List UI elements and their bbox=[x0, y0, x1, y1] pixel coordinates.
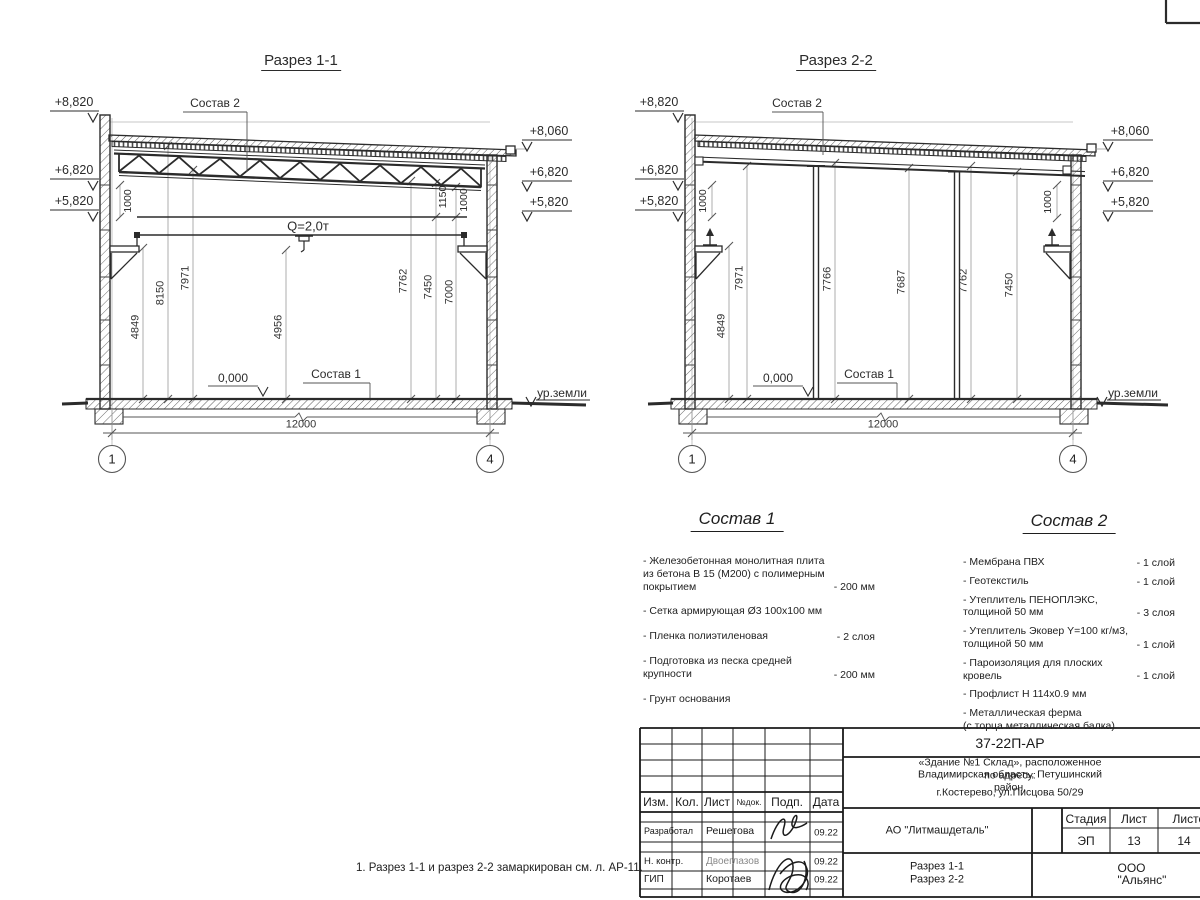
section1-elevation-right-2: +5,820 bbox=[530, 196, 569, 209]
drawing-sheet: Разрез 1-1 +8,820 +6,820 +5,820 +8,060 +… bbox=[0, 0, 1200, 900]
section1-comp2-ref: Состав 2 bbox=[190, 97, 240, 109]
section2-elevation-left-1: +6,820 bbox=[640, 164, 679, 177]
list-item: - Утеплитель Эковер Y=100 кг/м3, толщино… bbox=[963, 625, 1175, 651]
section1-grid-bubble-1: 1 bbox=[108, 453, 115, 466]
list-item: - Подготовка из песка средней крупности-… bbox=[643, 655, 875, 681]
composition2-list: - Мембрана ПВХ- 1 слой - Геотекстиль- 1 … bbox=[963, 556, 1175, 739]
titleblock-col-data: Дата bbox=[813, 796, 840, 808]
titleblock-role-1: Н. контр. bbox=[644, 857, 683, 867]
section2-vdim-1: 7971 bbox=[735, 266, 746, 290]
section1-grid-bubble-4: 4 bbox=[486, 453, 493, 466]
titleblock-contractor: ООО "Альянс" bbox=[1118, 862, 1173, 886]
section1-level-zero: 0,000 bbox=[218, 372, 248, 384]
section2-grid-bubble-4: 4 bbox=[1069, 453, 1076, 466]
section1-elevation-right-1: +6,820 bbox=[530, 166, 569, 179]
section1-elevation-left-2: +5,820 bbox=[55, 195, 94, 208]
section2-vdim-2: 7766 bbox=[823, 267, 834, 291]
composition2-title: Состав 2 bbox=[1023, 511, 1116, 534]
section2-smalldim-1: 1000 bbox=[1043, 190, 1054, 213]
list-item: - Грунт основания bbox=[643, 693, 875, 706]
section1-title: Разрез 1-1 bbox=[261, 53, 341, 71]
titleblock-col-kol: Кол. bbox=[675, 796, 699, 808]
section1-smalldim-2: 1000 bbox=[459, 188, 470, 211]
section1-vdim-2: 7971 bbox=[181, 266, 192, 290]
titleblock-col-ndok: №док. bbox=[737, 798, 762, 807]
titleblock-date-1: 09.22 bbox=[814, 857, 838, 867]
section2-ground-label: ур.земли bbox=[1108, 387, 1158, 399]
titleblock-sheets-label: Листов bbox=[1173, 813, 1200, 825]
section1-vdim-3: 4956 bbox=[274, 315, 285, 339]
section1-elevation-left-0: +8,820 bbox=[55, 96, 94, 109]
section1-ground-label: ур.земли bbox=[537, 387, 587, 399]
section2-grid-bubble-1: 1 bbox=[688, 453, 695, 466]
titleblock-date-2: 09.22 bbox=[814, 875, 838, 885]
titleblock-col-podp: Подп. bbox=[771, 796, 803, 808]
list-item: - Сетка армирующая Ø3 100х100 мм bbox=[643, 605, 875, 618]
section2-elevation-right-0: +8,060 bbox=[1111, 125, 1150, 138]
titleblock-role-0: Разработал bbox=[644, 827, 693, 836]
section1-elevation-left-1: +6,820 bbox=[55, 164, 94, 177]
titleblock-role-2: ГИП bbox=[644, 875, 664, 885]
section1-span-dim: 12000 bbox=[286, 420, 317, 431]
list-item: - Пленка полиэтиленовая- 2 слоя bbox=[643, 630, 875, 643]
section1-crane-label: Q=2,0т bbox=[287, 220, 329, 233]
titleblock-stage-label: Стадия bbox=[1066, 813, 1107, 825]
section1-smalldim-1: 1150 bbox=[438, 186, 449, 209]
composition1-title: Состав 1 bbox=[691, 509, 784, 532]
list-item: - Мембрана ПВХ- 1 слой bbox=[963, 556, 1175, 569]
section2-span-dim: 12000 bbox=[868, 420, 899, 431]
section2-title: Разрез 2-2 bbox=[796, 53, 876, 71]
titleblock-sheets-value: 14 bbox=[1177, 835, 1190, 847]
section2-elevation-right-2: +5,820 bbox=[1111, 196, 1150, 209]
list-item: - Утеплитель ПЕНОПЛЭКС, толщиной 50 мм- … bbox=[963, 594, 1175, 620]
section2-elevation-left-2: +5,820 bbox=[640, 195, 679, 208]
section1-vdim-4: 7762 bbox=[399, 269, 410, 293]
composition1-list: - Железобетонная монолитная плита из бет… bbox=[643, 555, 875, 717]
sheet-note: 1. Разрез 1-1 и разрез 2-2 замаркирован … bbox=[356, 863, 643, 875]
section1-smalldim-0: 1000 bbox=[123, 189, 134, 212]
section2-smalldim-0: 1000 bbox=[698, 189, 709, 212]
section2-elevation-right-1: +6,820 bbox=[1111, 166, 1150, 179]
section2-elevation-left-0: +8,820 bbox=[640, 96, 679, 109]
titleblock-address-3: г.Костерево, ул.Писцова 50/29 bbox=[937, 787, 1084, 800]
titleblock-company: АО "Литмашдеталь" bbox=[886, 826, 989, 837]
titleblock-col-list: Лист bbox=[704, 796, 730, 808]
section1-comp1-ref: Состав 1 bbox=[311, 368, 361, 380]
titleblock-date-0: 09.22 bbox=[814, 828, 838, 838]
titleblock-name-1: Двоеглазов bbox=[706, 857, 759, 867]
list-item: - Геотекстиль- 1 слой bbox=[963, 575, 1175, 588]
titleblock-name-0: Решетова bbox=[706, 826, 754, 837]
titleblock-sheet-value: 13 bbox=[1127, 835, 1140, 847]
section2-vdim-3: 7687 bbox=[897, 270, 908, 294]
section1-elevation-right-0: +8,060 bbox=[530, 125, 569, 138]
titleblock-content-1: Разрез 1-1 bbox=[910, 862, 964, 873]
section2-level-zero: 0,000 bbox=[763, 372, 793, 384]
list-item: - Железобетонная монолитная плита из бет… bbox=[643, 555, 875, 593]
section2-vdim-4: 7762 bbox=[959, 269, 970, 293]
section2-vdim-5: 7450 bbox=[1005, 273, 1016, 297]
titleblock-content-2: Разрез 2-2 bbox=[910, 875, 964, 886]
list-item: - Пароизоляция для плоских кровель- 1 сл… bbox=[963, 657, 1175, 683]
section1-vdim-5: 7450 bbox=[424, 275, 435, 299]
titleblock-doc-number: 37-22П-АР bbox=[975, 736, 1044, 750]
titleblock-sheet-label: Лист bbox=[1121, 813, 1147, 825]
list-item: - Металлическая ферма (с торца металличе… bbox=[963, 707, 1175, 733]
section2-comp2-ref: Состав 2 bbox=[772, 97, 822, 109]
section1-vdim-0: 4849 bbox=[131, 315, 142, 339]
section2-comp1-ref: Состав 1 bbox=[844, 368, 894, 380]
titleblock-name-2: Коротаев bbox=[706, 874, 751, 885]
signature-icon bbox=[769, 815, 808, 892]
section2-vdim-0: 4849 bbox=[717, 314, 728, 338]
list-item: - Профлист Н 114х0.9 мм bbox=[963, 688, 1175, 701]
section1-vdim-6: 7000 bbox=[445, 280, 456, 304]
titleblock-stage-value: ЭП bbox=[1077, 835, 1094, 847]
titleblock-col-izm: Изм. bbox=[643, 796, 669, 808]
section1-vdim-1: 8150 bbox=[156, 281, 167, 305]
